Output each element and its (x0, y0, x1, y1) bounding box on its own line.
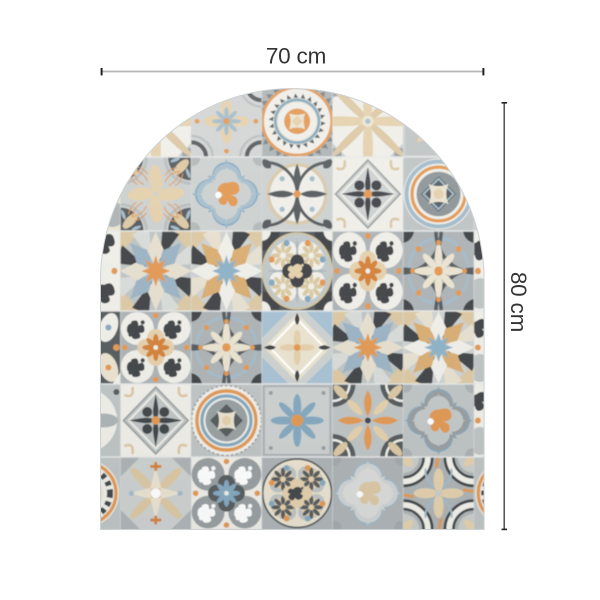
svg-text:80 cm: 80 cm (506, 272, 531, 332)
svg-text:70 cm: 70 cm (266, 44, 326, 69)
